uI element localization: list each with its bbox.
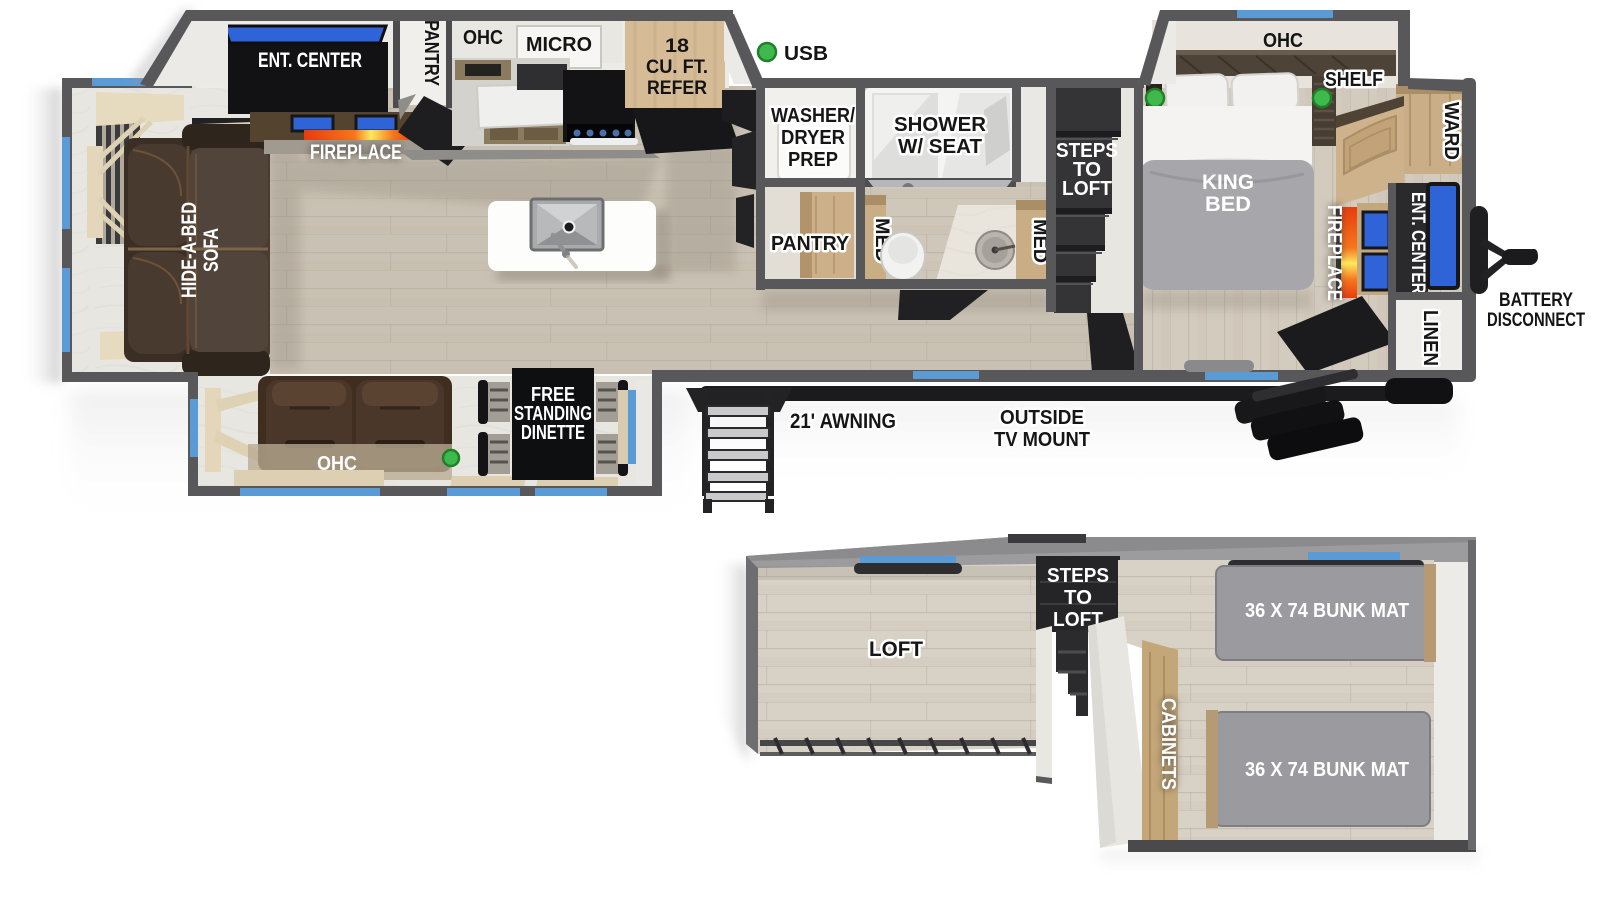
svg-text:SOFA: SOFA [200,228,223,272]
svg-text:PANTRY: PANTRY [771,233,850,255]
svg-text:WASHER/: WASHER/ [771,105,855,127]
svg-text:MICRO: MICRO [526,34,592,56]
svg-text:21' AWNING: 21' AWNING [790,410,896,433]
svg-text:LINEN: LINEN [1419,310,1441,366]
svg-text:CU. FT.: CU. FT. [646,57,708,78]
svg-text:CABINETS: CABINETS [1157,698,1179,790]
svg-text:BATTERY: BATTERY [1499,290,1573,311]
svg-text:36 X 74 BUNK MAT: 36 X 74 BUNK MAT [1245,759,1409,781]
svg-text:WARD: WARD [1440,102,1462,160]
svg-text:PANTRY: PANTRY [420,20,442,87]
svg-text:HIDE-A-BED: HIDE-A-BED [178,202,201,298]
svg-text:SHOWER: SHOWER [894,114,987,136]
svg-text:LOFT: LOFT [1062,178,1112,200]
svg-text:DISCONNECT: DISCONNECT [1487,310,1585,331]
svg-text:DINETTE: DINETTE [521,422,585,444]
svg-text:TV MOUNT: TV MOUNT [994,429,1090,451]
svg-text:DRYER: DRYER [781,127,846,149]
svg-text:TO: TO [1064,587,1092,609]
svg-text:PREP: PREP [788,149,838,171]
svg-text:ENT. CENTER: ENT. CENTER [1407,192,1428,294]
svg-text:FIREPLACE: FIREPLACE [1323,205,1345,301]
svg-text:BED: BED [1205,193,1251,216]
svg-text:STEPS: STEPS [1047,565,1109,587]
svg-text:18: 18 [665,36,689,57]
svg-text:ENT. CENTER: ENT. CENTER [258,49,362,72]
svg-text:KING: KING [1202,171,1254,194]
svg-text:OHC: OHC [463,27,503,49]
svg-text:LOFT: LOFT [869,638,923,661]
svg-text:FIREPLACE: FIREPLACE [310,141,402,164]
svg-text:USB: USB [784,43,828,65]
svg-text:SHELF: SHELF [1325,69,1383,91]
svg-text:36 X 74 BUNK MAT: 36 X 74 BUNK MAT [1245,600,1409,622]
svg-text:W/ SEAT: W/ SEAT [898,136,982,158]
svg-text:OHC: OHC [1263,30,1303,52]
svg-text:OUTSIDE: OUTSIDE [1000,407,1084,429]
svg-text:REFER: REFER [647,78,707,99]
